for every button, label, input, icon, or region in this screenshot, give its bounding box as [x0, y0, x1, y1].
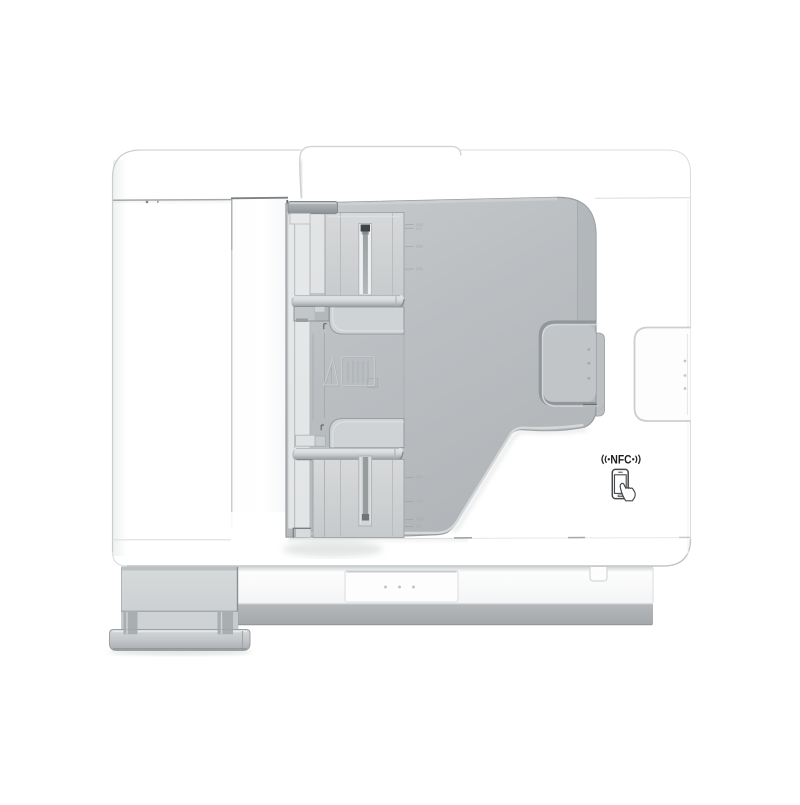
svg-text:NFC: NFC — [610, 454, 631, 467]
